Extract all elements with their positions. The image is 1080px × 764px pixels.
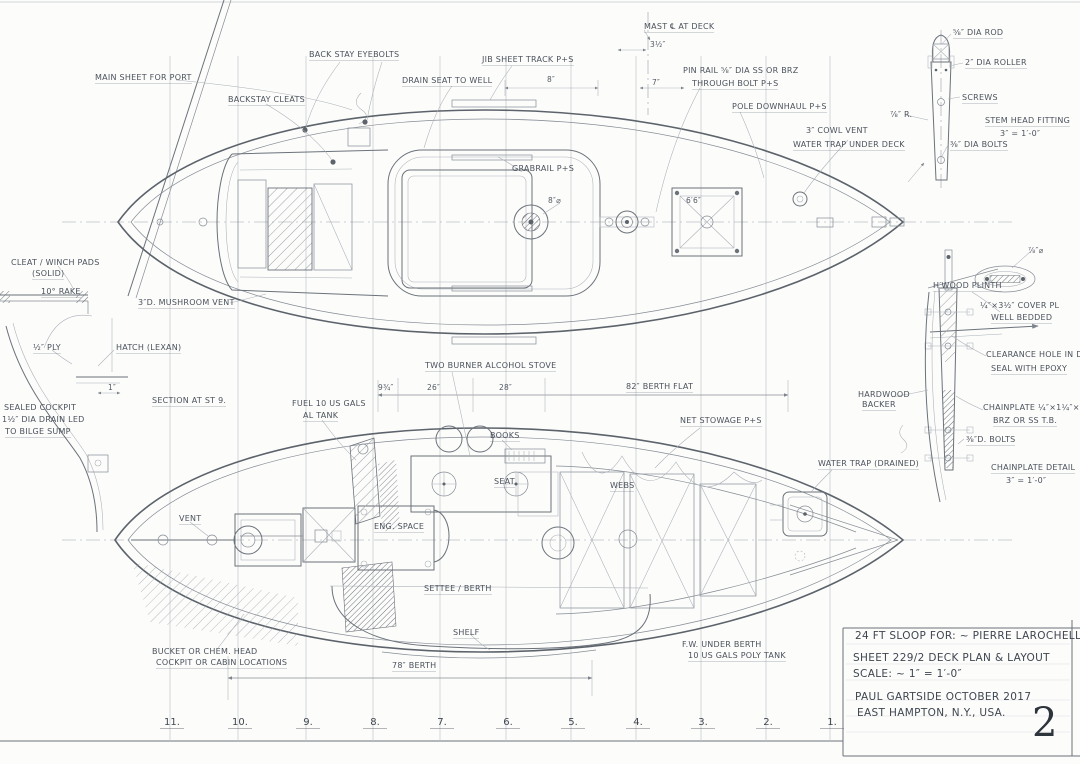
label-mushroom-vent: 3″D. MUSHROOM VENT	[138, 298, 235, 309]
label-backstay-cleats: BACKSTAY CLEATS	[228, 95, 305, 106]
blueprint-sheet: MAIN SHEET FOR PORT BACK STAY EYEBOLTS B…	[0, 0, 1080, 764]
label-backstay-eyebolts: BACK STAY EYEBOLTS	[309, 50, 399, 61]
label-seat: SEAT	[494, 477, 515, 488]
title-block-scale: SCALE: ~ 1″ = 1′-0″	[853, 668, 962, 680]
companionway-hatch	[268, 188, 312, 270]
station-11: 11.	[160, 717, 184, 729]
label-cp-bolts: ⅜″D. BOLTS	[966, 435, 1015, 446]
label-water-trap: WATER TRAP (DRAINED)	[818, 459, 919, 470]
stem-head-drawing	[908, 35, 954, 182]
label-mast-at-deck: MAST ℄ AT DECK	[644, 22, 714, 33]
label-pin-rail-2: THROUGH BOLT P+S	[692, 79, 778, 90]
backstay-lines	[128, 0, 366, 298]
sheet-number: 2	[1032, 700, 1057, 746]
leader-lines	[52, 30, 1030, 650]
backstay-cleat	[330, 159, 335, 164]
label-settee: SETTEE / BERTH	[424, 584, 492, 595]
label-cowl-vent-2: WATER TRAP UNDER DECK	[793, 140, 905, 151]
grabrail-port	[452, 155, 532, 160]
station-1: 1.	[820, 717, 844, 729]
label-stove: TWO BURNER ALCOHOL STOVE	[425, 361, 556, 372]
label-stem-screws: SCREWS	[962, 93, 998, 104]
station-8: 8.	[363, 717, 387, 729]
dim-3-5: 3½″	[650, 40, 666, 49]
dim-berth-flat: 82″ BERTH FLAT	[626, 382, 693, 393]
label-head-1: BUCKET OR CHEM. HEAD	[152, 647, 257, 656]
label-jib-sheet-track: JIB SHEET TRACK P+S	[482, 55, 574, 66]
label-engine-space: ENG. SPACE	[374, 522, 424, 533]
label-cp-cover-2: WELL BEDDED	[991, 313, 1052, 324]
label-grabrail: GRABRAIL P+S	[512, 164, 574, 173]
label-cp-backer-2: BACKER	[862, 400, 896, 411]
jib-track-port	[452, 100, 536, 107]
label-cp-plate-1: CHAINPLATE ¼″×1¼″×16″	[983, 403, 1080, 412]
backstay-eyebolt	[362, 119, 367, 124]
label-net-stowage: NET STOWAGE P+S	[680, 416, 762, 427]
label-fuel-1: FUEL 10 US GALS	[292, 399, 366, 408]
label-cp-title: CHAINPLATE DETAIL	[991, 463, 1075, 474]
dim-berth-78: 78″ BERTH	[392, 661, 436, 672]
cowl-vent-circle	[793, 192, 807, 206]
dim-8: 8″	[547, 75, 555, 84]
label-fresh-water-1: F.W. UNDER BERTH	[682, 640, 762, 649]
label-stem-title: STEM HEAD FITTING	[985, 116, 1070, 127]
label-cockpit-1: SEALED COCKPIT	[4, 403, 76, 412]
label-cp-clear-1: CLEARANCE HOLE IN DECK	[986, 350, 1080, 359]
lower-hull-layout-plan	[115, 426, 903, 658]
label-cleat-pads-2: (SOLID)	[32, 269, 64, 280]
title-block-sheet: SHEET 229/2 DECK PLAN & LAYOUT	[853, 652, 1050, 664]
label-cp-cover-1: ¼″×3½″ COVER PL	[980, 301, 1059, 310]
label-stem-scale: 3″ = 1′-0″	[1000, 129, 1040, 138]
dim-9-75: 9¾″	[378, 383, 394, 392]
label-cleat-pads-1: CLEAT / WINCH PADS	[11, 258, 100, 267]
label-pin-rail-1: PIN RAIL ⅝″ DIA SS OR BRZ	[683, 66, 798, 75]
label-main-sheet: MAIN SHEET FOR PORT	[95, 73, 192, 84]
station-5: 5.	[561, 717, 585, 729]
label-stem-rod: ⅝″ DIA ROD	[953, 28, 1003, 39]
label-fuel-2: AL TANK	[303, 411, 338, 422]
station-9: 9.	[296, 717, 320, 729]
label-head-2: COCKPIT OR CABIN LOCATIONS	[156, 658, 287, 669]
label-books: BOOKS	[490, 431, 520, 442]
label-stem-roller: 2″ DIA ROLLER	[965, 58, 1027, 69]
dim-26: 26″	[427, 383, 440, 392]
label-vent: VENT	[179, 514, 201, 525]
label-cp-clear-2: SEAL WITH EPOXY	[991, 364, 1067, 375]
label-cockpit-2: 1½″ DIA DRAIN LED	[2, 415, 85, 424]
jib-track-stbd	[452, 337, 536, 344]
dim-7: 7″	[652, 78, 660, 87]
label-hatch-dim: 6′6″	[686, 196, 701, 205]
label-cp-plate-2: BRZ OR SS T.B.	[993, 416, 1057, 427]
label-webs: WEBS	[610, 481, 634, 492]
label-ply: ½″ PLY	[33, 343, 61, 354]
station-3: 3.	[691, 717, 715, 729]
label-stem-radius: ⅞″ R.	[890, 110, 912, 119]
dim-28: 28″	[499, 383, 512, 392]
label-fresh-water-2: 10 US GALS POLY TANK	[688, 651, 786, 662]
label-cockpit-3: TO BILGE SUMP	[5, 427, 71, 438]
label-wheel-dia: 8″⌀	[548, 196, 561, 205]
label-cowl-vent-1: 3″ COWL VENT	[806, 126, 868, 135]
station-4: 4.	[626, 717, 650, 729]
label-hatch-lexan: HATCH (LEXAN)	[116, 343, 181, 354]
label-pole-downhaul: POLE DOWNHAUL P+S	[732, 102, 827, 113]
label-cp-backer-1: HARDWOOD	[858, 390, 910, 399]
dimension-lines	[228, 50, 788, 700]
station-7: 7.	[430, 717, 454, 729]
dim-one-inch: 1″	[108, 383, 116, 392]
label-rake: 10° RAKE	[41, 287, 81, 298]
station-2: 2.	[756, 717, 780, 729]
label-drain-seat: DRAIN SEAT TO WELL	[402, 76, 492, 87]
label-cp-dia: ⅞″⌀	[1028, 246, 1043, 255]
label-shelf: SHELF	[453, 628, 479, 639]
label-stem-bolts: ⅜″ DIA BOLTS	[950, 140, 1008, 151]
station-10: 10.	[228, 717, 252, 729]
station-6: 6.	[496, 717, 520, 729]
title-block-author: PAUL GARTSIDE OCTOBER 2017	[855, 691, 1031, 703]
label-section-title: SECTION AT ST 9.	[152, 396, 226, 407]
label-cp-scale: 3″ = 1′-0″	[1006, 476, 1046, 485]
title-block-place: EAST HAMPTON, N.Y., USA.	[857, 707, 1006, 719]
label-cp-plinth: H′WOOD PLINTH	[933, 281, 1002, 292]
title-block-client: 24 FT SLOOP FOR: ~ PIERRE LAROCHELLE	[855, 630, 1080, 642]
